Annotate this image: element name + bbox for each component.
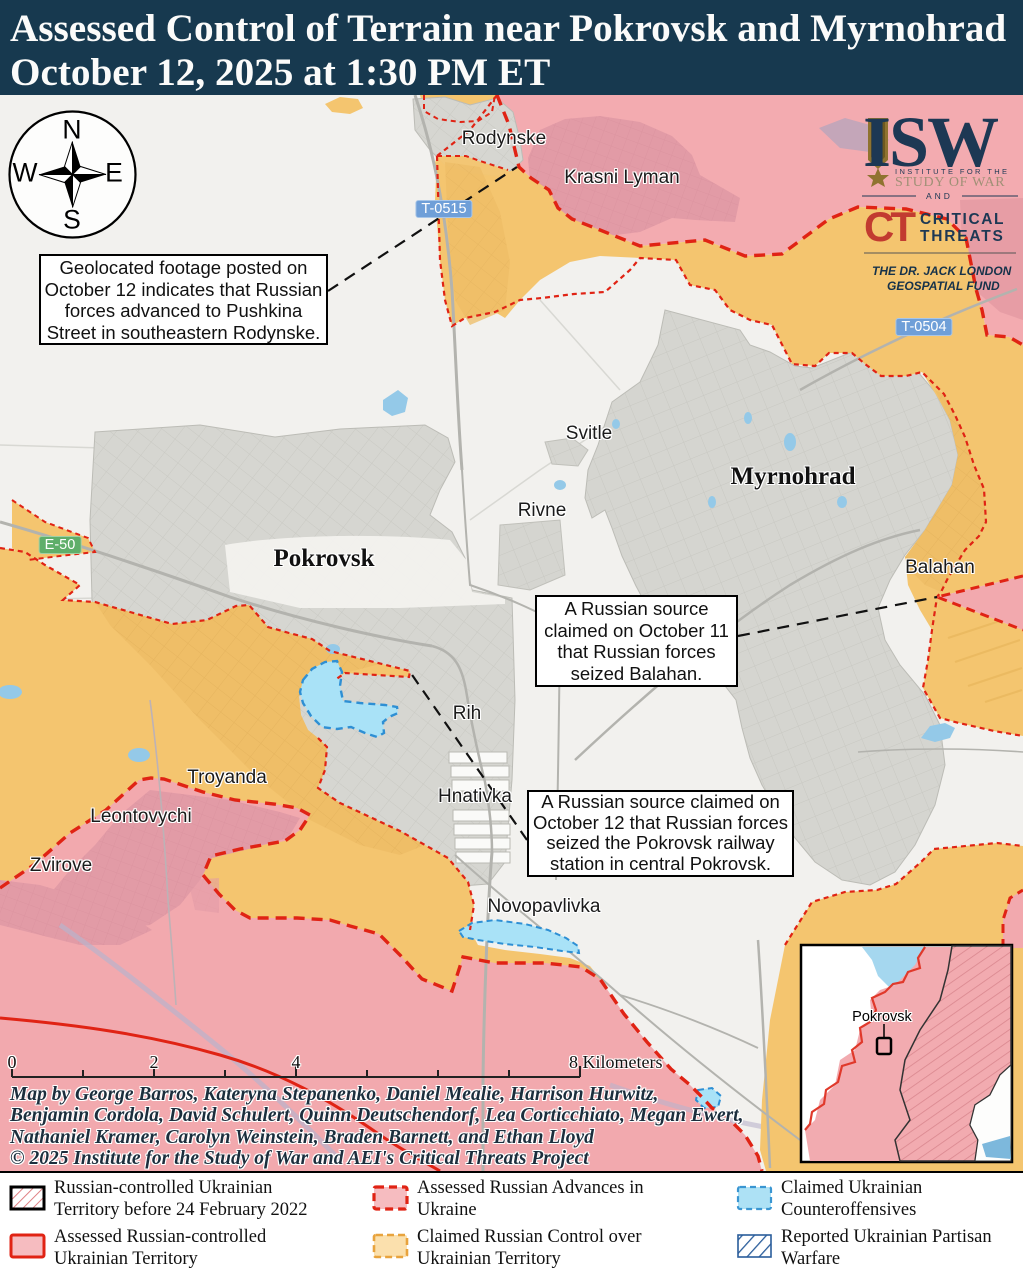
svg-text:CT: CT — [864, 203, 916, 250]
svg-text:STUDY OF WAR: STUDY OF WAR — [895, 175, 1005, 190]
svg-text:THREATS: THREATS — [920, 228, 1005, 245]
svg-text:AND: AND — [926, 191, 953, 201]
svg-text:CRITICAL: CRITICAL — [920, 211, 1005, 228]
svg-text:THE DR. JACK LONDON: THE DR. JACK LONDON — [872, 264, 1012, 278]
svg-text:GEOSPATIAL FUND: GEOSPATIAL FUND — [887, 279, 1000, 293]
